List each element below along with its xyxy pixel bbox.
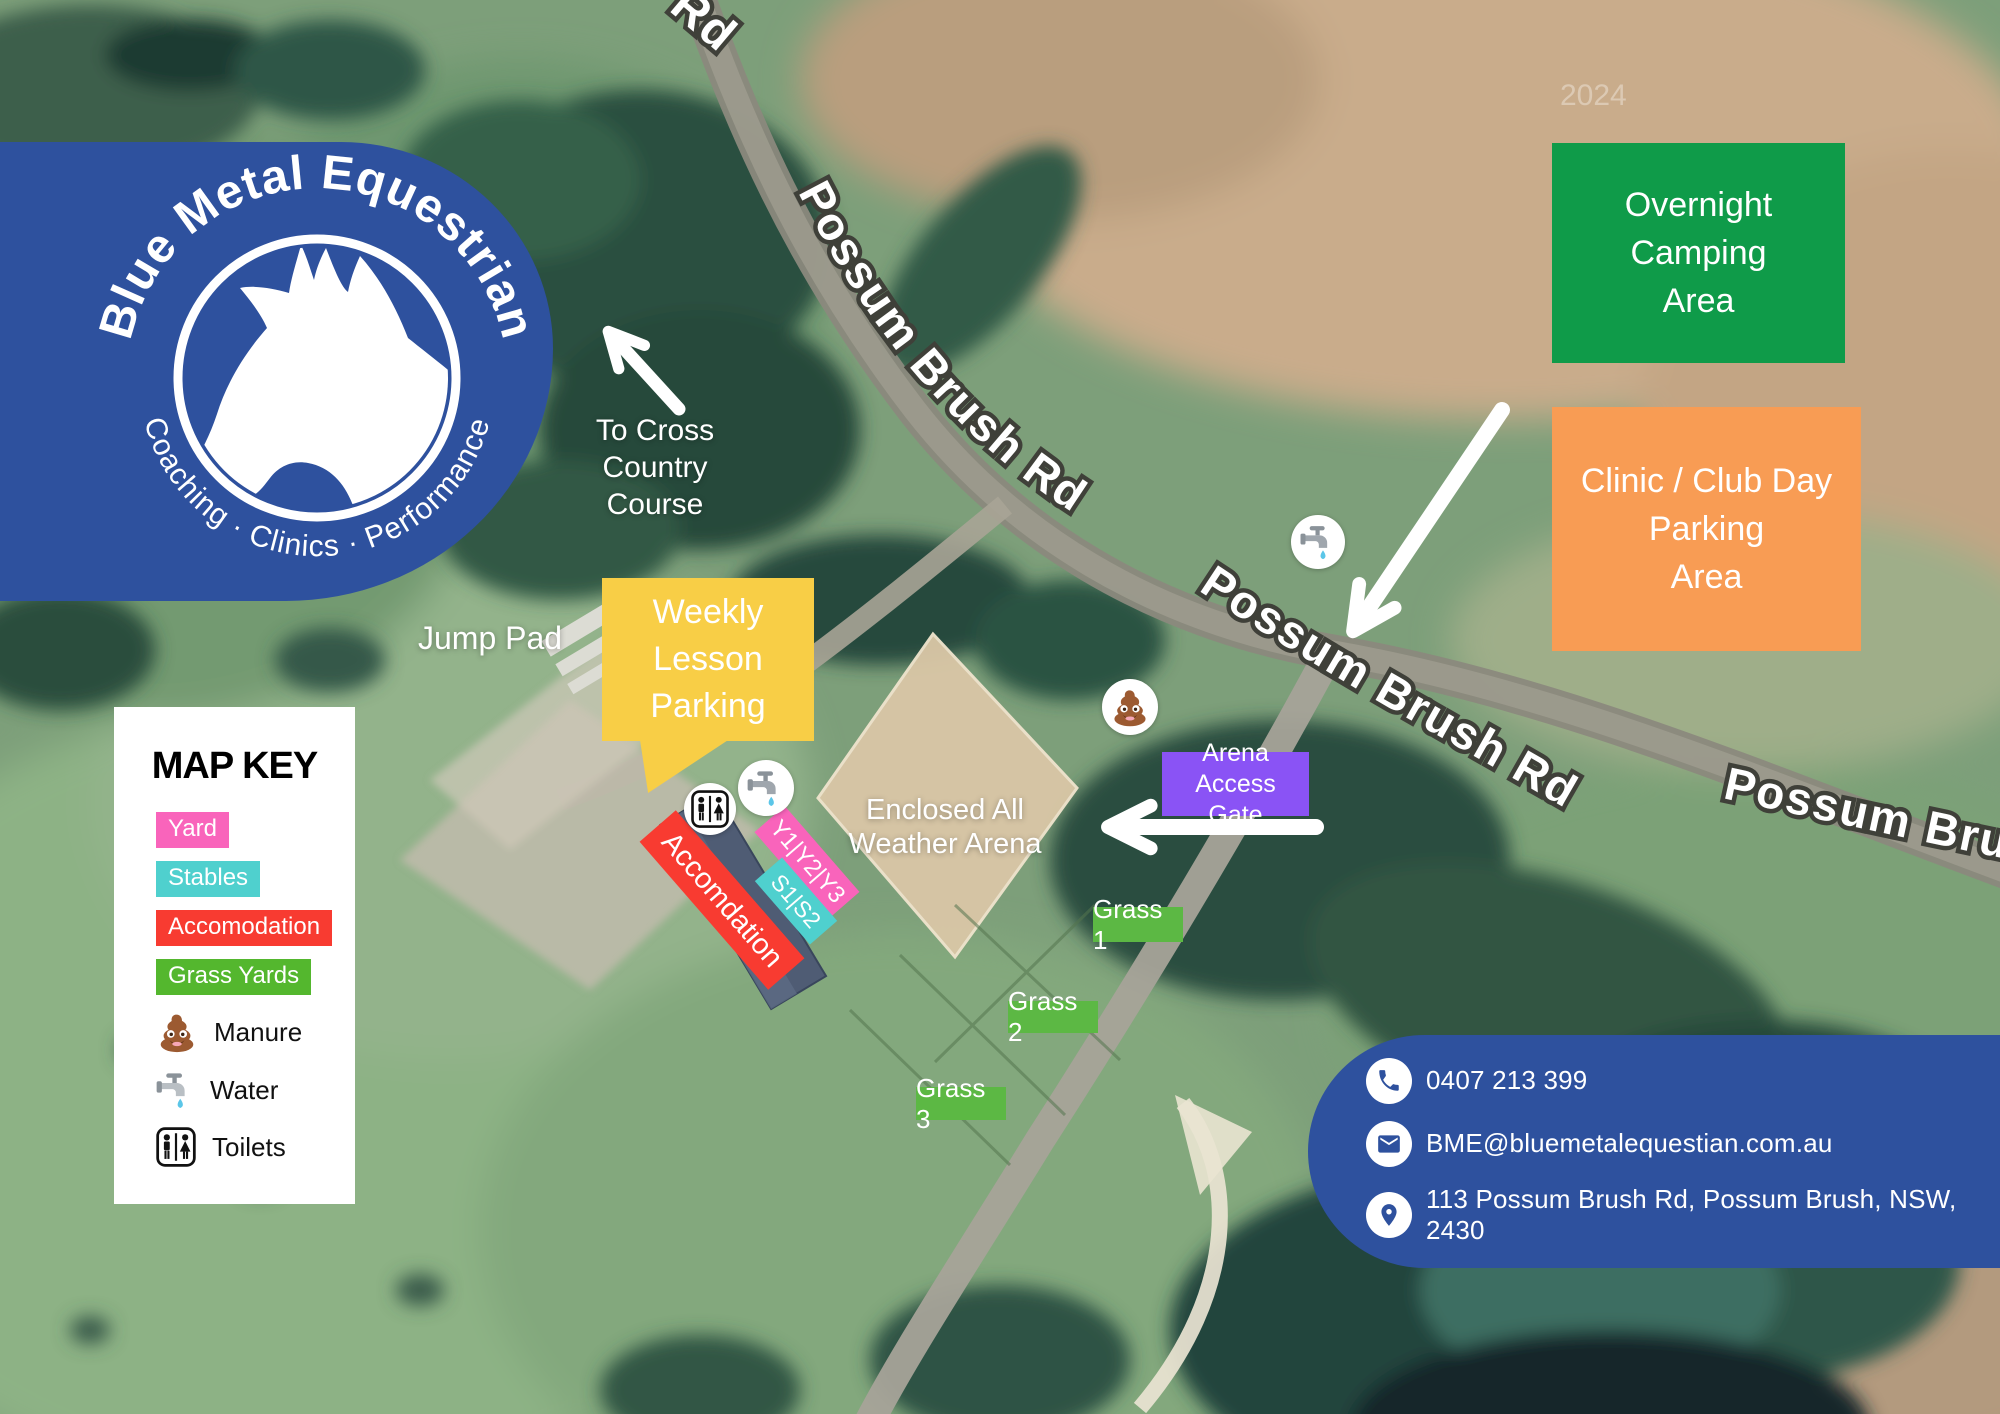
clinic-parking-arrow [1362,410,1502,618]
arena-access-gate-box: Arena Access Gate [1162,752,1309,816]
contact-phone: 0407 213 399 [1426,1065,1587,1096]
jump-pad-label: Jump Pad [418,620,588,657]
map-key-panel: MAP KEY Yard Stables Accomodation Grass … [114,707,355,1204]
key-chip-yard: Yard [156,812,229,848]
camping-line: Overnight [1625,181,1772,229]
clinic-parking-line: Area [1671,553,1743,601]
arena-label-line: Enclosed All [840,793,1050,827]
key-chip-grass-yards: Grass Yards [156,959,311,995]
contact-phone-row: 0407 213 399 [1366,1058,2000,1104]
contact-address: 113 Possum Brush Rd, Possum Brush, NSW, … [1426,1184,2000,1246]
cross-country-arrow [617,341,679,409]
overnight-camping-area-box: Overnight Camping Area [1552,143,1845,363]
key-row-water: Water [154,1069,355,1111]
phone-icon [1366,1058,1412,1104]
cross-country-line: Course [540,486,770,523]
camping-line: Area [1663,277,1735,325]
key-row-toilets: Toilets [154,1125,355,1169]
logo-graphic: Blue Metal Equestrian Coaching · Clinics… [0,142,553,601]
road-label-possum-upper-text: Possum Brush Rd [789,173,1097,522]
poop-icon [1108,685,1152,729]
location-pin-icon [1366,1192,1412,1238]
water-marker-stables [738,760,794,816]
clinic-parking-line: Parking [1649,505,1764,553]
poop-icon [154,1009,200,1055]
weekly-parking-line: Parking [650,683,765,730]
clinic-parking-line: Clinic / Club Day [1581,457,1832,505]
contact-address-row: 113 Possum Brush Rd, Possum Brush, NSW, … [1366,1184,2000,1246]
cross-country-line: To Cross Country [540,412,770,486]
key-label-manure: Manure [214,1017,302,1048]
water-faucet-icon [745,767,787,809]
driveway-loop [1140,1095,1252,1408]
contact-email: BME@bluemetalequestian.com.au [1426,1128,1833,1159]
water-faucet-icon [1298,522,1338,562]
key-label-water: Water [210,1075,278,1106]
toilets-marker [684,783,736,835]
road-label-rd-fragment: Rd [661,0,747,62]
weekly-lesson-parking-bubble: Weekly Lesson Parking [602,578,814,741]
clinic-parking-area-box: Clinic / Club Day Parking Area [1552,407,1861,651]
weekly-parking-line: Weekly [653,589,764,636]
road-label-possum-right-text: Possum Brush Rd [1720,757,2000,896]
road-label-possum-upper: Possum Brush Rd [789,173,1097,522]
key-chip-stables: Stables [156,861,260,897]
key-label-toilets: Toilets [212,1132,286,1163]
toilets-icon [154,1125,198,1169]
road-label-possum-right: Possum Brush Rd [1720,757,2000,896]
grass-3-tag: Grass 3 [916,1087,1006,1120]
arena-label: Enclosed All Weather Arena [840,793,1050,861]
arena-label-line: Weather Arena [840,827,1050,861]
water-marker-road [1291,515,1345,569]
weekly-parking-line: Lesson [653,636,763,683]
imagery-watermark: 2024 [1560,79,1627,112]
grass-2-tag: Grass 2 [1008,1001,1098,1033]
grass-1-tag: Grass 1 [1093,907,1183,942]
facility-map: Rd Possum Brush Rd Possum Brush Rd Possu… [0,0,2000,1414]
mail-icon [1366,1121,1412,1167]
map-key-title: MAP KEY [114,745,355,788]
logo-badge: Blue Metal Equestrian Coaching · Clinics… [0,142,553,601]
key-chip-accommodation: Accomodation [156,910,332,946]
toilets-icon [689,788,731,830]
arena-gate-line: Gate [1208,800,1262,831]
water-faucet-icon [154,1069,196,1111]
road-label-rd-fragment-text: Rd [661,0,747,62]
contact-email-row: BME@bluemetalequestian.com.au [1366,1121,2000,1167]
cross-country-label: To Cross Country Course [540,412,770,523]
manure-marker [1102,679,1158,735]
contact-panel: 0407 213 399 BME@bluemetalequestian.com.… [1308,1035,2000,1268]
arena-gate-line: Arena Access [1162,738,1309,800]
camping-line: Camping [1630,229,1766,277]
key-row-manure: Manure [154,1009,355,1055]
